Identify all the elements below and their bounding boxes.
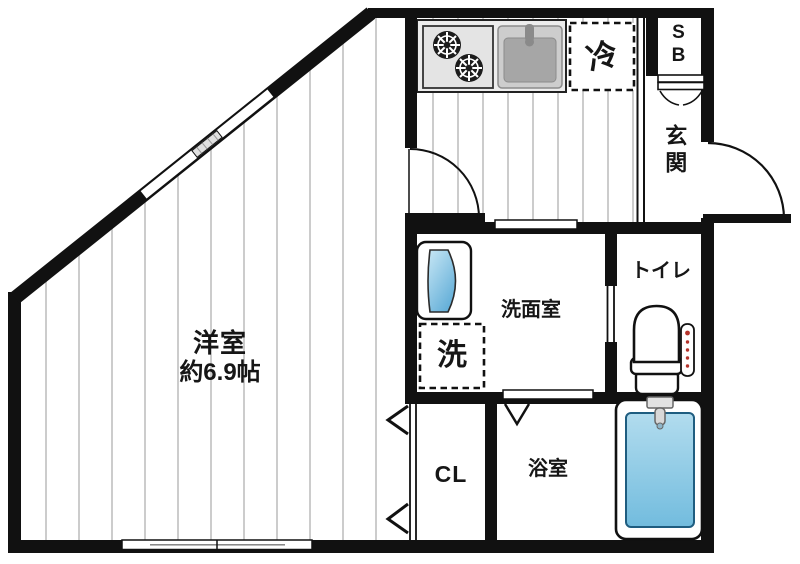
toilet-remote — [681, 324, 694, 376]
bathroom-door — [503, 390, 593, 399]
floorplan-drawing — [0, 0, 800, 564]
washbasin-icon — [417, 242, 471, 319]
closet-doors — [388, 404, 416, 540]
wall-closet-bath — [485, 392, 497, 540]
wall-top — [368, 8, 714, 18]
stove-icon — [423, 26, 493, 88]
washing-machine-space — [420, 324, 484, 388]
wall-toilet-upper — [605, 234, 617, 286]
kitchen-counter — [417, 20, 566, 92]
toilet-door — [608, 286, 615, 342]
door-swing-arc — [708, 143, 784, 219]
wall-toilet-lower — [605, 342, 617, 392]
stove-burner-icon — [455, 54, 483, 82]
entrance-door — [703, 143, 791, 223]
window-diagonal — [140, 88, 275, 199]
washroom-door — [495, 220, 577, 229]
wall-shoebox — [646, 18, 658, 76]
shoebox-doors — [658, 75, 704, 105]
western-room-floor-lines — [46, 12, 376, 540]
wall-kitchen-left-lower — [405, 218, 417, 392]
wall-kitchen-left-upper — [405, 18, 417, 148]
floorplan: 洋室 約6.9帖 冷 SB 玄関 トイレ 洗面室 洗 CL 浴室 — [0, 0, 800, 564]
stove-burner-icon — [433, 31, 461, 59]
kitchen-sink-icon — [498, 24, 562, 88]
wall-left — [8, 292, 21, 553]
window-bottom — [122, 540, 312, 550]
door-swing-arc — [410, 149, 479, 218]
bathtub-icon — [616, 397, 702, 539]
wall-bottom — [8, 540, 714, 553]
entrance-step-line — [638, 18, 645, 222]
refrigerator-space — [570, 23, 634, 90]
kitchen-door — [405, 149, 485, 222]
toilet-icon — [631, 306, 694, 394]
bathroom-door-mark — [505, 404, 529, 424]
